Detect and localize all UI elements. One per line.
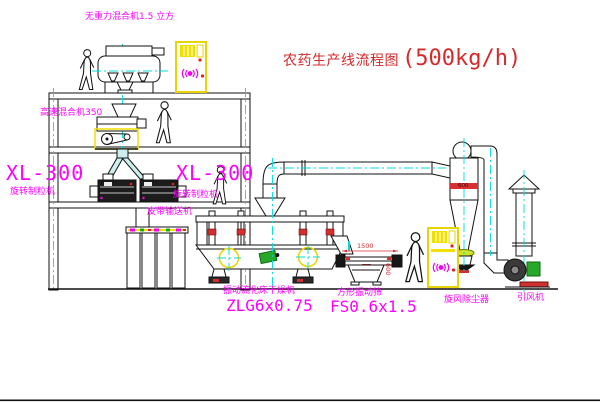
dim-cyclone-band: 600 — [458, 184, 469, 190]
high-speed-mixer — [95, 104, 146, 149]
drawing-title: 农药生产线流程图 (500kg/h) — [283, 46, 521, 71]
label-zero-gravity-mixer: 无重力混合机1.5 立方 — [85, 13, 174, 22]
indicator-light — [201, 74, 204, 77]
cad-drawing: 农药生产线流程图 (500kg/h) 无重力混合机1.5 立方 高速混合机350… — [0, 0, 600, 403]
fan-motor — [527, 262, 540, 276]
control-cabinet-1 — [176, 42, 206, 92]
granulator-left — [90, 174, 136, 202]
label-granulator-right-model: XL-300 — [176, 163, 254, 183]
control-cabinet-2 — [428, 228, 458, 287]
label-dryer-model: ZLG6x0.75 — [226, 298, 313, 314]
dim-sieve-length: 1500 — [357, 243, 374, 250]
fan-base — [520, 282, 548, 287]
person-1 — [79, 50, 93, 90]
fluid-bed-dryer — [196, 211, 353, 283]
title-text: 农药生产线流程图 — [283, 50, 399, 70]
label-dryer-name: 振动流化床干燥机 — [223, 287, 295, 296]
indicator-light — [198, 58, 201, 61]
label-belt-conveyor: 皮带输送机 — [147, 208, 192, 217]
exhaust-hood — [255, 162, 285, 216]
induced-draft-fan — [504, 259, 550, 287]
label-granulator-right-name: 旋转制粒机 — [173, 191, 218, 200]
label-granulator-left-name: 旋转制粒机 — [10, 188, 55, 197]
drawing-border-bottom — [0, 400, 600, 402]
label-high-speed-mixer: 高速混合机350 — [40, 109, 102, 118]
label-sieve-model: FS0.6x1.5 — [330, 299, 417, 315]
indicator-light — [450, 244, 453, 247]
label-fan: 引风机 — [517, 294, 544, 303]
zero-gravity-mixer — [92, 46, 168, 93]
dim-sieve-width: 600 — [385, 263, 392, 275]
vibrating-sieve — [336, 250, 402, 285]
indicator-light — [452, 268, 455, 271]
label-granulator-left-model: XL-300 — [6, 163, 84, 183]
person-4 — [406, 233, 424, 282]
belt-conveyor — [126, 227, 188, 288]
label-cyclone: 旋风除尘器 — [444, 296, 489, 305]
person-2 — [156, 102, 171, 143]
title-capacity: (500kg/h) — [402, 46, 521, 71]
